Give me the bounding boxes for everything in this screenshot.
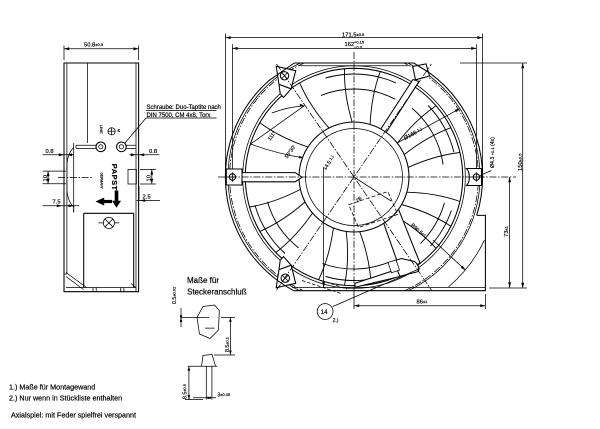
svg-text:M: M (116, 129, 121, 132)
svg-text:Axialspiel: mit Feder spielfre: Axialspiel: mit Feder spielfrei verspann… (11, 411, 136, 420)
svg-text:0.5±0.02: 0.5±0.02 (172, 286, 179, 304)
svg-text:162: 162 (345, 42, 355, 48)
svg-text:14: 14 (321, 310, 328, 316)
svg-text:50.8±0.3: 50.8±0.3 (84, 42, 104, 49)
svg-text:111°: 111° (267, 130, 278, 142)
svg-text:PAPST: PAPST (110, 164, 119, 191)
svg-text:3±0.05: 3±0.05 (217, 392, 231, 399)
svg-text:Steckeranschluß: Steckeranschluß (187, 288, 247, 297)
svg-text:0.8: 0.8 (149, 149, 157, 155)
svg-text:2.5: 2.5 (143, 194, 151, 200)
svg-text:LINE: LINE (99, 125, 104, 134)
svg-text:GERMANY: GERMANY (100, 173, 104, 190)
svg-text:Maße für: Maße für (187, 276, 219, 285)
svg-text:7.5: 7.5 (53, 199, 61, 205)
svg-text:2.) Nur wenn in Stückliste ent: 2.) Nur wenn in Stückliste enthalten (9, 394, 122, 403)
svg-text:86±1: 86±1 (417, 299, 429, 306)
svg-text:8.5±0.5: 8.5±0.5 (182, 383, 189, 399)
svg-text:55°30': 55°30' (284, 145, 297, 160)
svg-text:10: 10 (43, 175, 49, 181)
svg-text:DIN 7500, CM 4x8, Torx: DIN 7500, CM 4x8, Torx (147, 113, 211, 119)
svg-text:−0.3: −0.3 (354, 45, 363, 50)
svg-text:Schraube: Duo-Taptite nach: Schraube: Duo-Taptite nach (147, 105, 221, 111)
svg-text:Ø4.3 +0.1 (4x): Ø4.3 +0.1 (4x) (490, 137, 496, 168)
svg-text:0.8: 0.8 (46, 149, 54, 155)
svg-text:1.) Maße für Montagewand: 1.) Maße für Montagewand (9, 383, 95, 392)
svg-text:2.): 2.) (333, 318, 339, 324)
svg-text:10: 10 (146, 175, 152, 181)
